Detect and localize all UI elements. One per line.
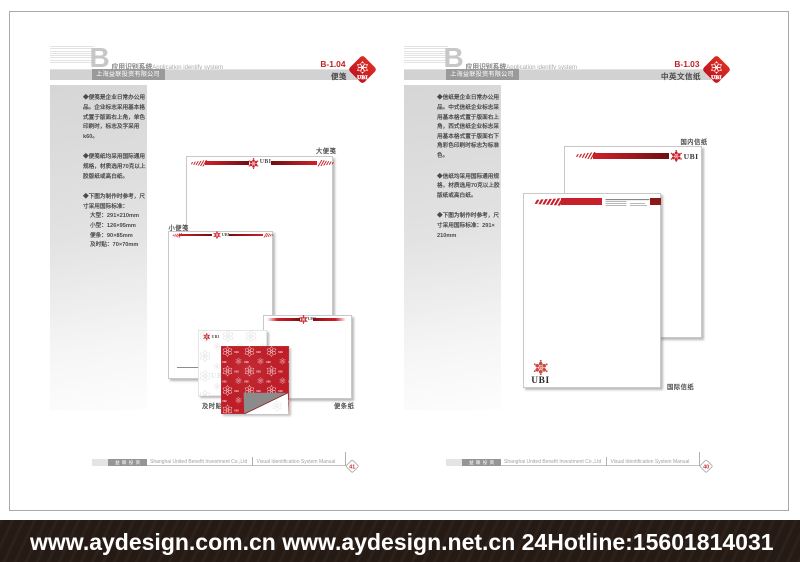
svg-text:UBI: UBI <box>357 75 368 81</box>
svg-text:41: 41 <box>349 464 355 470</box>
svg-text:UBI: UBI <box>711 75 722 81</box>
svg-text:40: 40 <box>703 464 709 470</box>
